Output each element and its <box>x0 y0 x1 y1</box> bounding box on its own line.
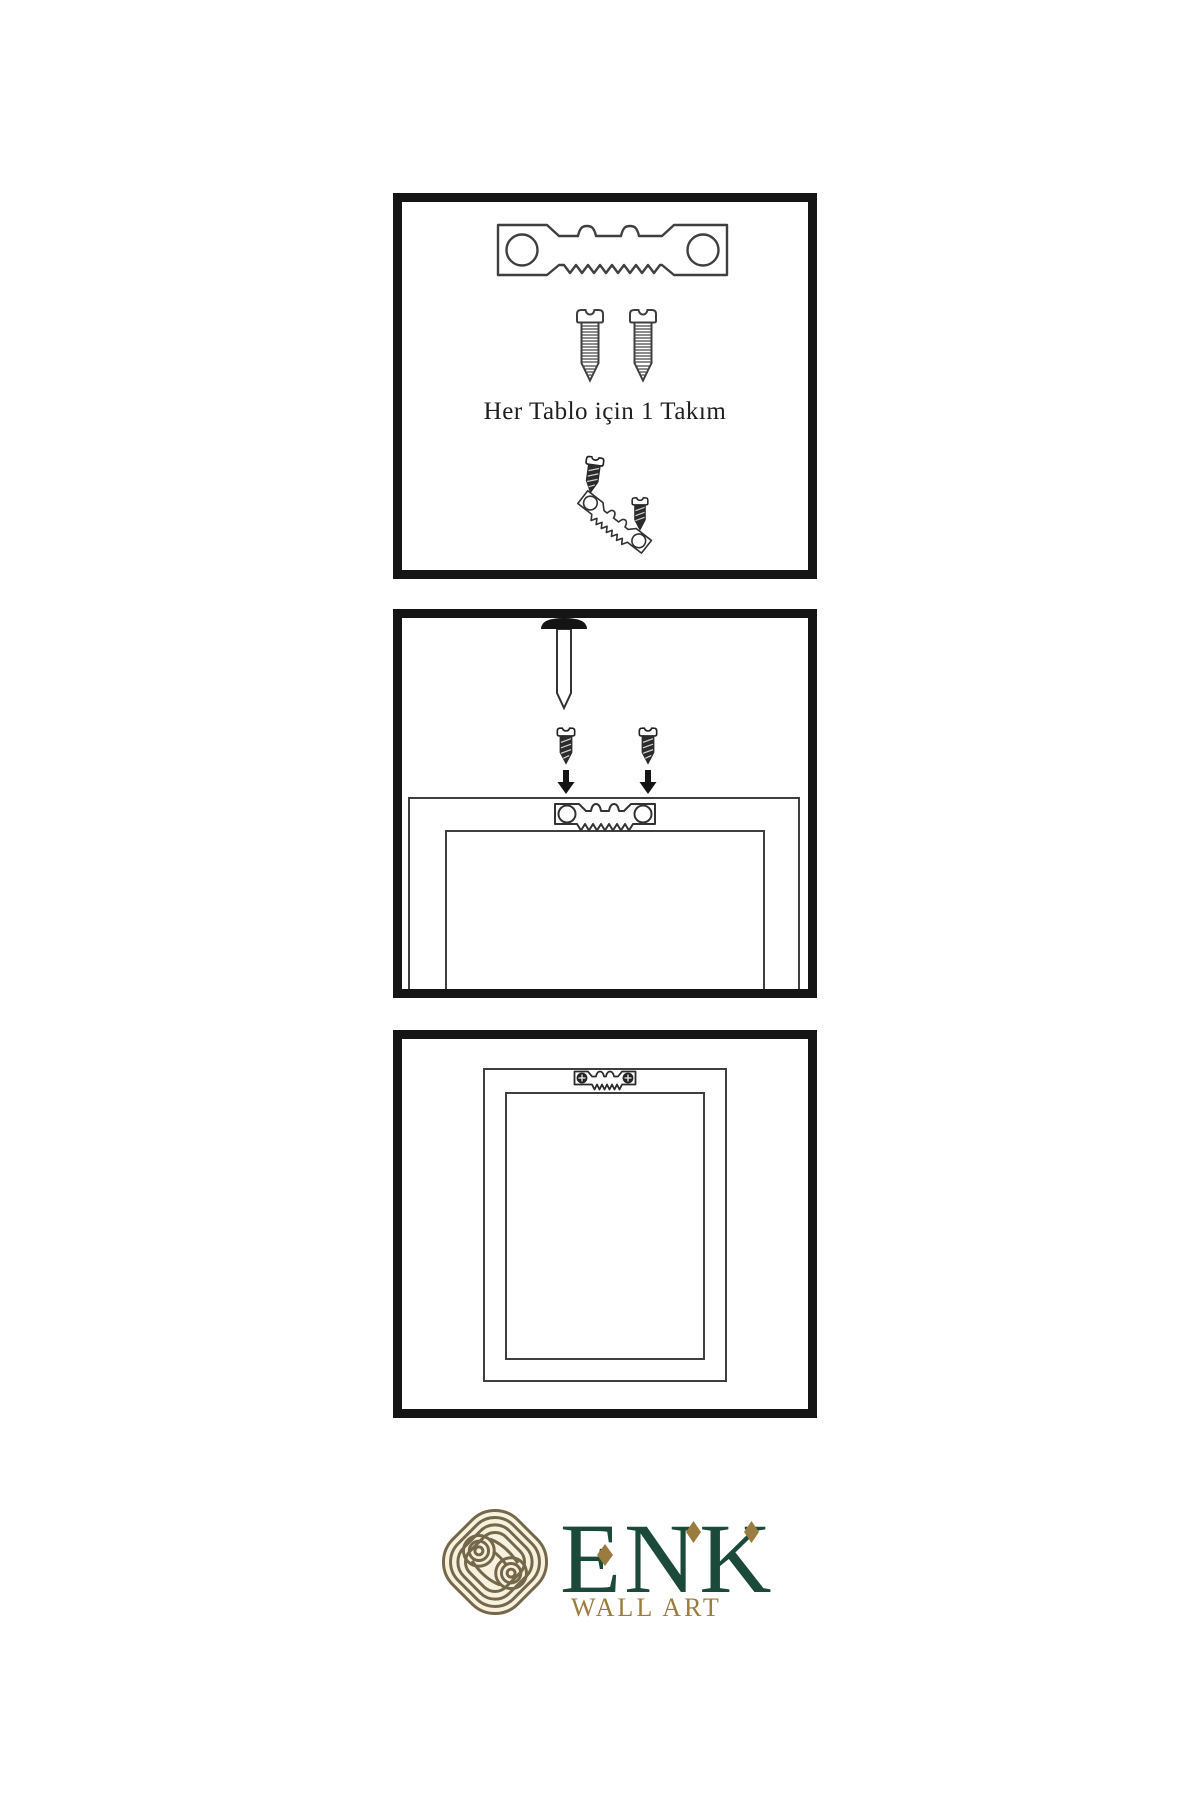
wall-nail-icon <box>540 617 588 711</box>
step-3-panel <box>393 1030 817 1418</box>
small-screw-icon <box>555 725 577 767</box>
sawtooth-hanger-icon <box>495 222 730 278</box>
frame-back-inner-outline <box>445 830 765 998</box>
step-1-panel: Her Tablo için 1 Takım <box>393 193 817 579</box>
knot-icon <box>433 1497 557 1627</box>
page: { "steps": [ { "id": 1, "caption": "Her … <box>0 0 1200 1800</box>
arrow-down-icon <box>639 770 657 794</box>
installed-sawtooth-hanger-icon <box>573 1070 637 1092</box>
step-1-caption: Her Tablo için 1 Takım <box>402 398 808 426</box>
arrow-down-icon <box>557 770 575 794</box>
small-screw-icon <box>579 453 607 498</box>
small-screw-icon <box>637 725 659 767</box>
screw-icon <box>625 305 661 383</box>
sawtooth-hanger-icon <box>553 802 657 834</box>
step-2-panel <box>393 609 817 998</box>
screw-icon <box>572 305 608 383</box>
brand-tagline: WALL ART <box>571 1595 722 1621</box>
hung-frame-inner-outline <box>505 1092 705 1360</box>
